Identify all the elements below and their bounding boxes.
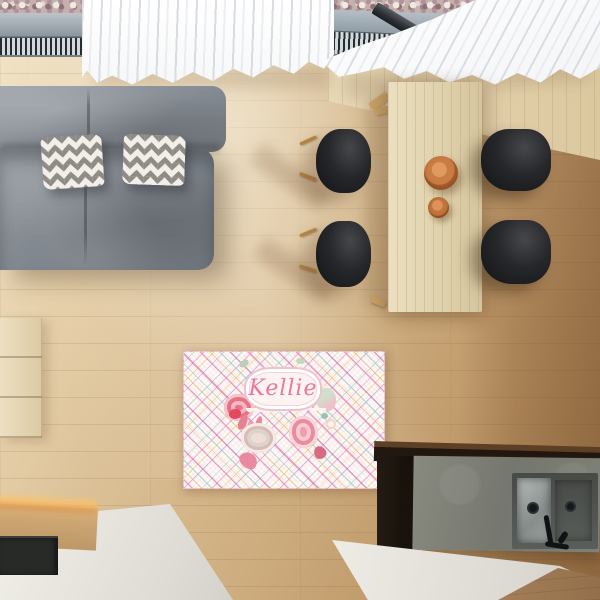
sink-drain (529, 504, 537, 512)
chair-bottom-right (481, 220, 551, 284)
leaf (238, 359, 250, 369)
personalized-rug: Kellie (183, 351, 385, 489)
rose-flower (241, 423, 276, 453)
chevron-pillow-1 (40, 134, 104, 190)
leaf (295, 357, 305, 365)
chair-top-right (481, 129, 551, 191)
chair-top-left (316, 129, 371, 193)
chevron-pillow-2 (122, 134, 186, 186)
heating-grille-left (0, 37, 91, 57)
cooktop (0, 536, 58, 575)
window-sill-left (0, 13, 92, 38)
petal (312, 444, 329, 461)
chair-bottom-left (316, 221, 371, 287)
room-overhead-photo: Kellie (0, 0, 600, 600)
drawer-cabinet (0, 318, 42, 438)
sofa-back (0, 86, 226, 152)
rug-name-label: Kellie (244, 367, 322, 411)
sink-basin-right (555, 480, 592, 541)
bowl-small (428, 197, 449, 218)
rose-flower (289, 416, 318, 448)
sink-drain (567, 503, 574, 510)
rug-monogram-text: Kellie (249, 378, 318, 400)
table-shadow (364, 98, 384, 306)
bowl-large (424, 156, 458, 190)
flower-bud (326, 419, 336, 429)
